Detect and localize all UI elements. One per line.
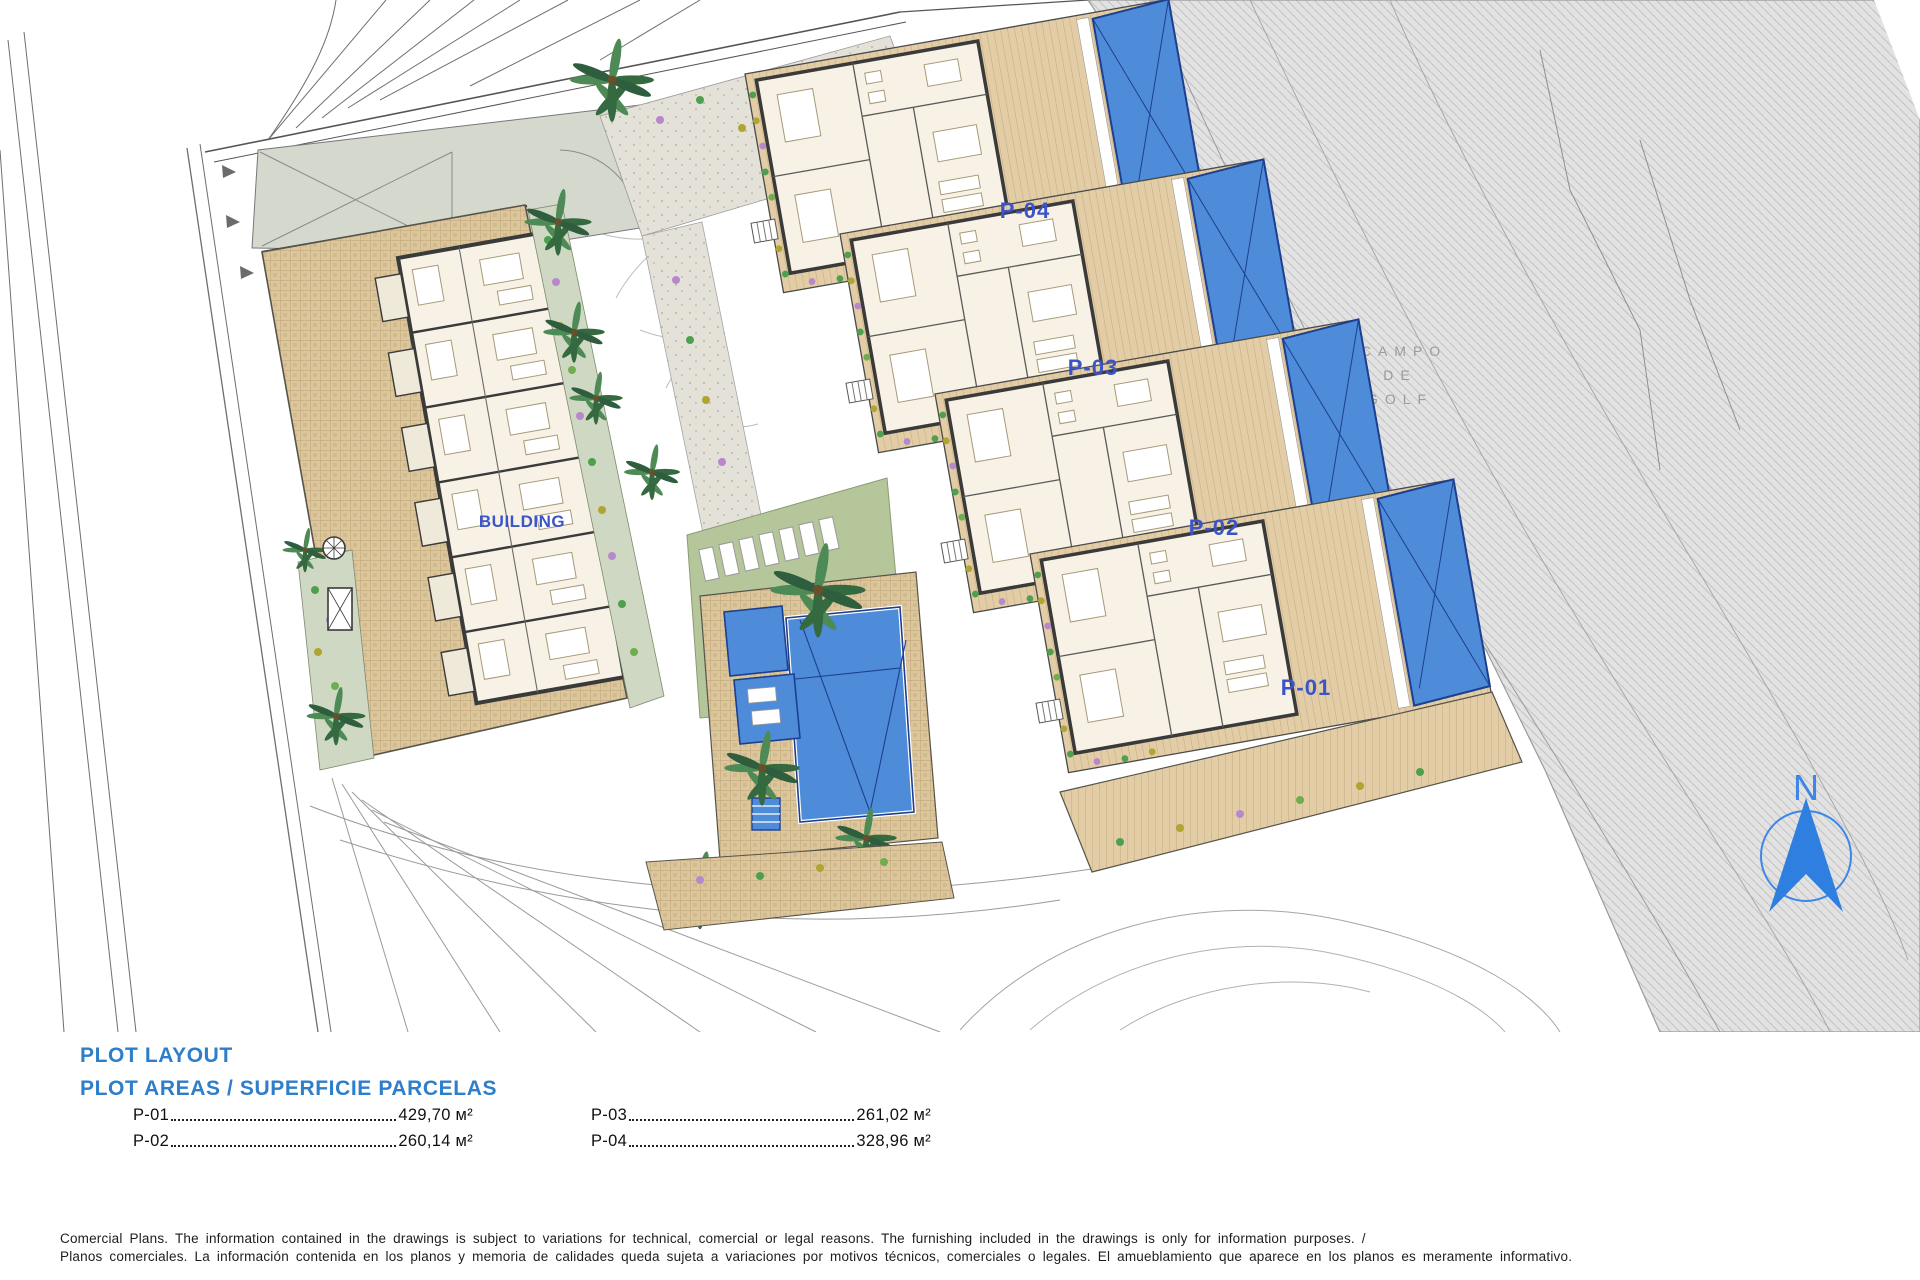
plot-label-p02: P-02 <box>1189 515 1239 540</box>
site-plan: CAMPO DE GOLF <box>0 0 1920 1032</box>
area-row-p04: P-04 328,96 м² <box>591 1132 931 1151</box>
area-value: 429,70 м² <box>398 1106 473 1125</box>
area-row-p01: P-01 429,70 м² <box>133 1106 473 1125</box>
north-label: N <box>1793 767 1819 808</box>
svg-text:DE: DE <box>1383 367 1416 383</box>
area-plot-id: P-04 <box>591 1132 627 1151</box>
area-row-p03: P-03 261,02 м² <box>591 1106 931 1125</box>
dotted-leader <box>629 1119 854 1121</box>
disclaimer: Comercial Plans. The information contain… <box>60 1230 1874 1265</box>
svg-text:GOLF: GOLF <box>1367 391 1433 407</box>
area-plot-id: P-02 <box>133 1132 169 1151</box>
dotted-leader <box>629 1145 854 1147</box>
plot-label-p03: P-03 <box>1068 355 1118 380</box>
site-plan-drawing: CAMPO DE GOLF <box>0 0 1920 1032</box>
plot-areas-list: P-01 429,70 м² P-02 260,14 м² P-03 261,0… <box>133 1106 931 1151</box>
building-label: BUILDING <box>479 512 565 531</box>
disclaimer-en: Comercial Plans. The information contain… <box>60 1230 1874 1248</box>
area-value: 261,02 м² <box>856 1106 931 1125</box>
area-plot-id: P-03 <box>591 1106 627 1125</box>
dotted-leader <box>171 1119 396 1121</box>
area-plot-id: P-01 <box>133 1106 169 1125</box>
page: CAMPO DE GOLF <box>0 0 1920 1280</box>
boundary-arrows <box>222 165 254 279</box>
plot-label-p04: P-04 <box>1000 198 1050 223</box>
area-value: 328,96 м² <box>856 1132 931 1151</box>
dotted-leader <box>171 1145 396 1147</box>
page-title: PLOT LAYOUT <box>80 1040 497 1073</box>
page-subtitle: PLOT AREAS / SUPERFICIE PARCELAS <box>80 1073 497 1106</box>
disclaimer-es: Planos comerciales. La información conte… <box>60 1248 1874 1266</box>
plot-label-p01: P-01 <box>1281 675 1331 700</box>
area-row-p02: P-02 260,14 м² <box>133 1132 473 1151</box>
area-value: 260,14 м² <box>398 1132 473 1151</box>
svg-text:CAMPO: CAMPO <box>1361 343 1447 359</box>
legend-heading: PLOT LAYOUT PLOT AREAS / SUPERFICIE PARC… <box>80 1040 497 1105</box>
